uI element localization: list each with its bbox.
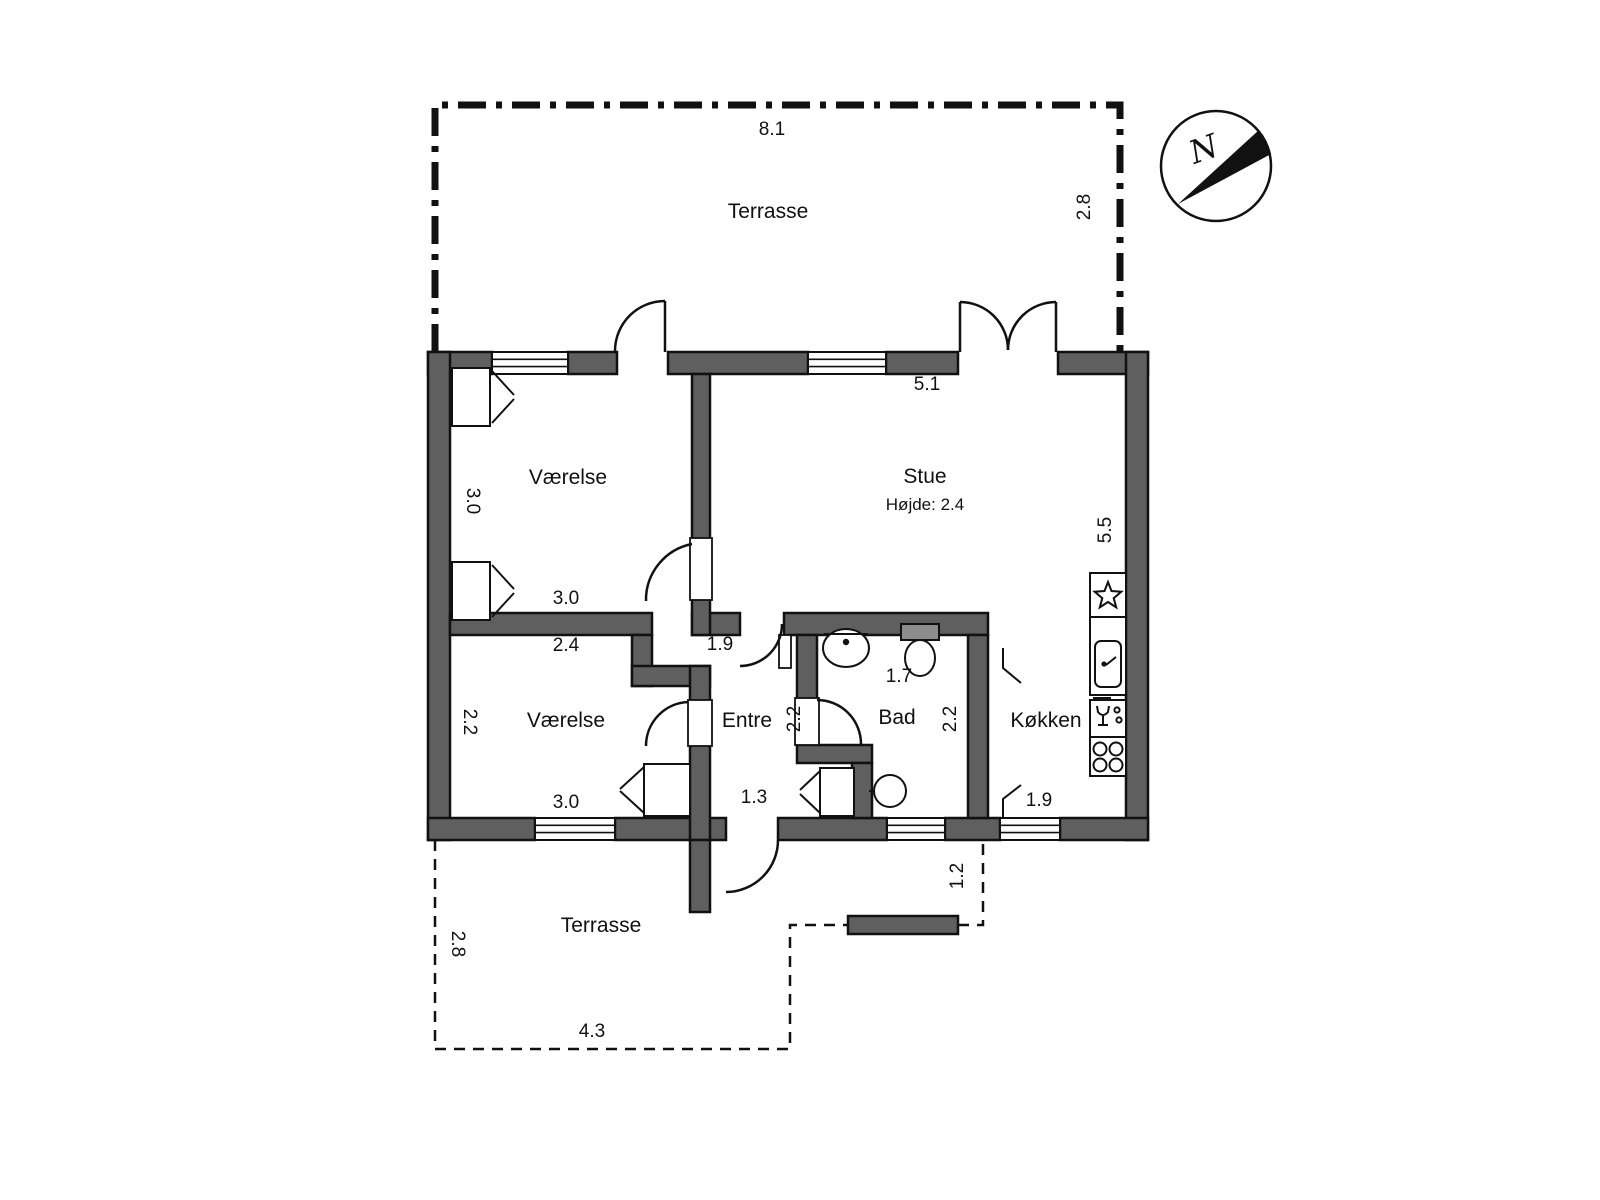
cooktop-icon: [1090, 737, 1126, 776]
terrace-bottom-boundary: [435, 840, 848, 1049]
wall-segment: [668, 352, 808, 374]
dim-label: 5.5: [1095, 517, 1116, 543]
window: [887, 818, 945, 840]
dim-label: 1.7: [886, 666, 912, 687]
wall-segment: [428, 818, 535, 840]
front-door: [726, 840, 778, 892]
terrace-top-label: Terrasse: [728, 200, 809, 223]
dim-label: 1.9: [1026, 790, 1052, 811]
window: [535, 818, 615, 840]
water-heater-icon: [869, 775, 906, 807]
room-bedroom-sw: 2.4 Værelse 2.2 3.0: [459, 635, 605, 813]
room-kitchen: Køkken 1.9: [1010, 709, 1081, 811]
room-label: Køkken: [1010, 709, 1081, 732]
wall-segment: [784, 613, 988, 635]
window: [1000, 818, 1060, 840]
compass-circle: [1161, 111, 1271, 221]
floorplan-page: 8.1 Terrasse 2.8 N: [0, 0, 1600, 1200]
dim-label: 5.1: [914, 374, 940, 395]
wood-stove-icon: [1090, 573, 1126, 617]
dishwasher-icon: [1090, 700, 1126, 737]
terrace-step: [848, 916, 958, 934]
room-label: Bad: [878, 706, 915, 729]
wall-segment-terrace-stub: [690, 840, 710, 912]
dim-label: 2.2: [784, 706, 805, 732]
wardrobe-icon: [452, 368, 514, 426]
bathroom-sink-icon: [823, 629, 869, 667]
kitchen-opening: [1003, 648, 1021, 818]
terrace-bottom-depth-dim: 2.8: [447, 931, 468, 957]
room-living: 5.1 Stue Højde: 2.4 5.5: [886, 374, 1116, 543]
wall-segment: [886, 352, 958, 374]
wall-segment: [945, 818, 1000, 840]
door-bedroom-nw-terrace: [615, 301, 665, 352]
window: [492, 352, 568, 374]
terrace-bottom-width-dim: 4.3: [579, 1021, 605, 1042]
door-bedroom-nw-hall: [646, 538, 712, 601]
wall-segment: [968, 635, 988, 818]
outer-walls: [428, 352, 1148, 840]
dim-label: 2.2: [940, 706, 961, 732]
wall-segment: [690, 666, 710, 840]
floorplan-drawing: 8.1 Terrasse 2.8 N: [0, 0, 1600, 1200]
terrace-top-boundary: [435, 105, 1120, 352]
wall-segment: [778, 818, 887, 840]
dim-label: 2.2: [459, 709, 480, 735]
kitchen-sink-icon: [1090, 617, 1126, 695]
wardrobe-icon: [452, 562, 514, 620]
window: [808, 352, 886, 374]
dim-label: 1.9: [707, 634, 733, 655]
north-arrow-icon: N: [1161, 111, 1271, 221]
wall-segment: [797, 745, 872, 763]
door-bedroom-sw-hall: [646, 700, 712, 746]
terrace-top: 8.1 Terrasse 2.8: [435, 105, 1120, 352]
room-label: Værelse: [527, 709, 605, 732]
double-door-living-terrace: [960, 302, 1056, 352]
terrace-step-dim: 1.2: [947, 863, 968, 889]
ceiling-height-note: Højde: 2.4: [886, 495, 964, 514]
wall-segment-right: [1126, 352, 1148, 840]
wardrobe-icon: [800, 768, 854, 816]
dim-label: 2.4: [553, 635, 580, 656]
room-label: Stue: [903, 465, 946, 488]
dim-label: 3.0: [553, 588, 579, 609]
dim-label: 3.0: [553, 792, 579, 813]
dim-label: 3.0: [462, 488, 483, 514]
dim-label: 1.3: [741, 787, 767, 808]
room-label: Entre: [722, 709, 772, 732]
wall-segment: [568, 352, 617, 374]
wall-segment-left: [428, 352, 450, 840]
wall-segment: [1060, 818, 1148, 840]
terrace-bottom-label: Terrasse: [561, 914, 642, 937]
wardrobe-icon: [620, 764, 690, 816]
terrace-top-width-dim: 8.1: [759, 119, 785, 140]
room-label: Værelse: [529, 466, 607, 489]
terrace-top-depth-dim: 2.8: [1074, 194, 1095, 220]
